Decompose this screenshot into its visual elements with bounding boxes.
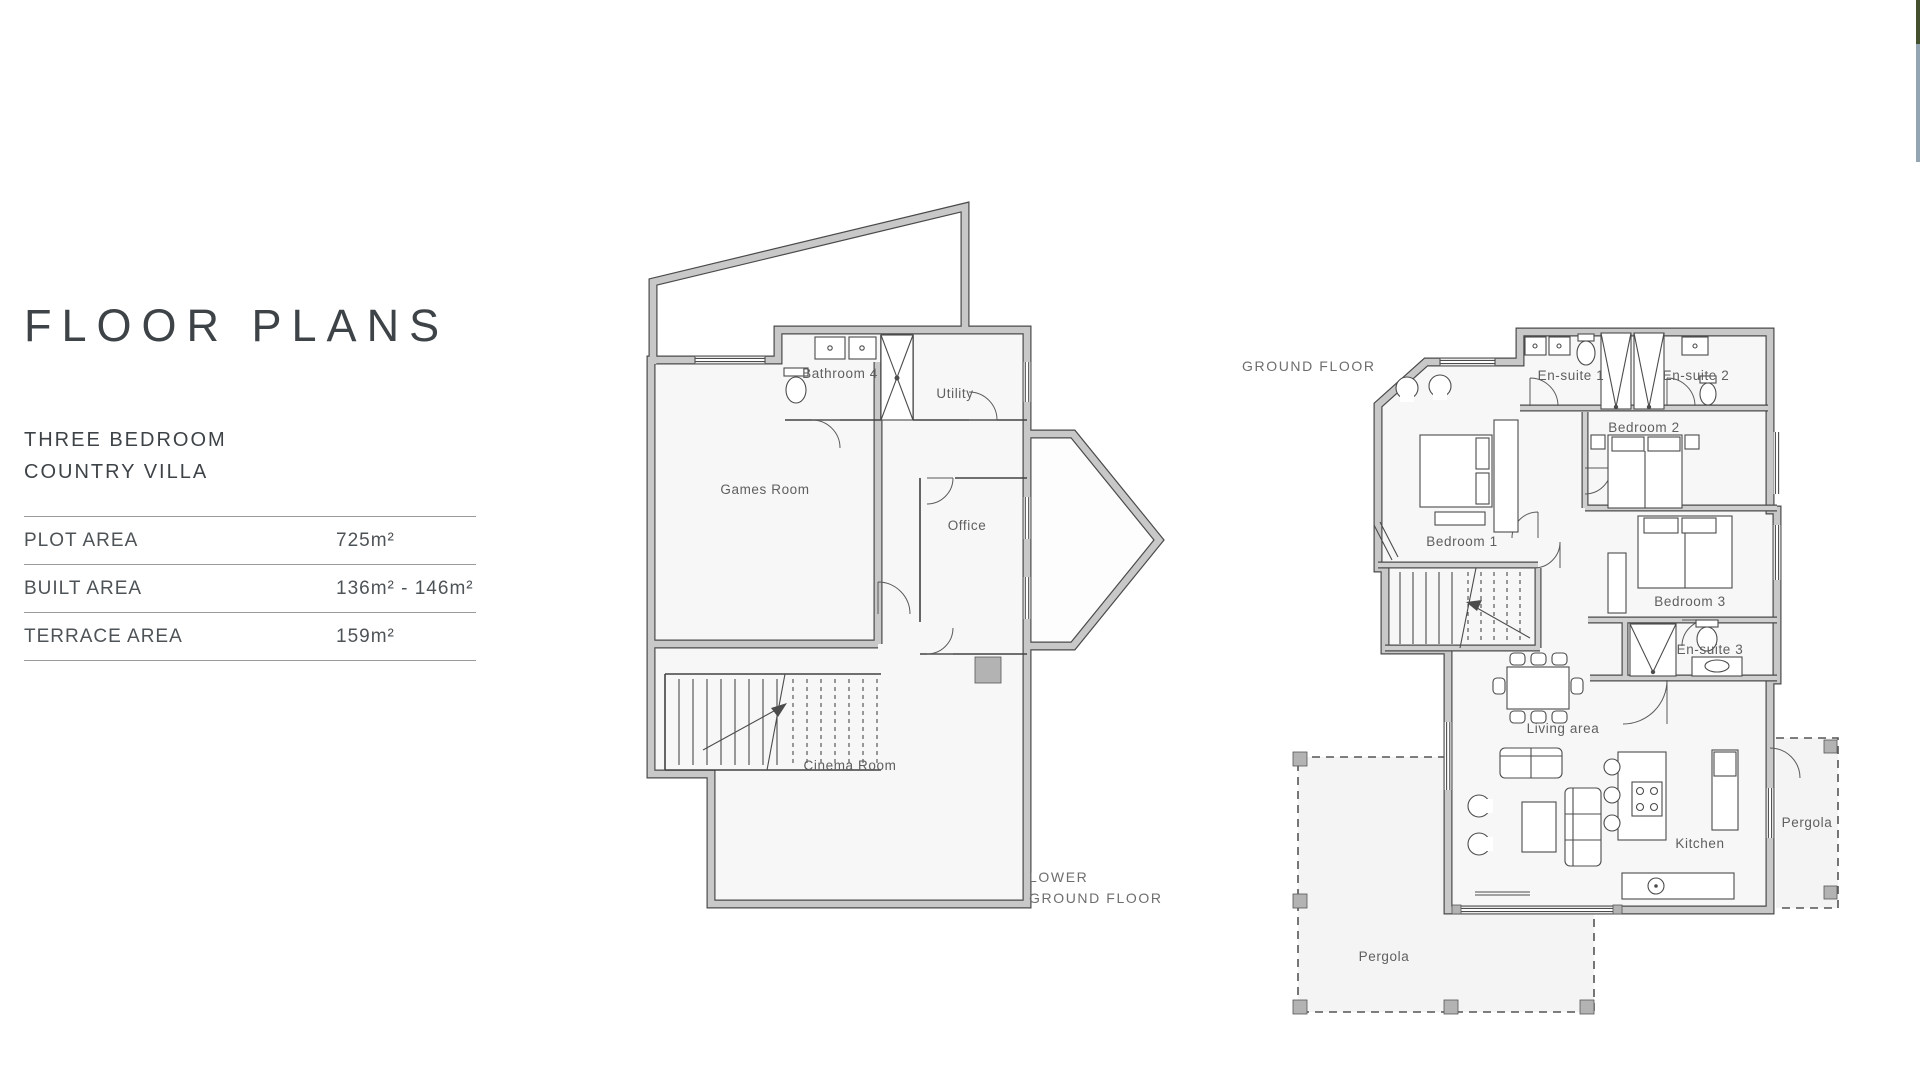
kitchen-island-icon [1604,752,1666,840]
table-row-plot-area: PLOT AREA 725m² [24,516,476,564]
hob-icon [1632,782,1662,816]
floor-label-line-1: LOWER [1029,869,1088,885]
pergola-post [1580,1000,1594,1014]
spec-label: PLOT AREA [24,530,336,552]
spec-label: BUILT AREA [24,578,336,600]
wardrobe-icon [1601,333,1631,409]
room-label-ensuite2: En-suite 2 [1663,368,1730,383]
stool-icon [1604,759,1620,775]
floor-plans-page: FLOOR PLANS THREE BEDROOM COUNTRY VILLA … [0,0,1920,1069]
floor-label-ground: GROUND FLOOR [1242,358,1376,374]
table-row-built-area: BUILT AREA 136m² - 146m² [24,564,476,612]
room-label-bedroom3: Bedroom 3 [1654,594,1725,609]
subtitle-line-1: THREE BEDROOM [24,424,227,456]
ground-floor-plan: GROUND FLOOR En-suite 1 En-suite 2 Bedro… [1230,320,1855,1035]
pergola-post [1824,740,1837,753]
room-label-pergola-left: Pergola [1359,949,1410,964]
room-label-cinema-room: Cinema Room [804,758,897,773]
floor-label-line-2: GROUND FLOOR [1029,890,1163,906]
room-label-pergola-right: Pergola [1782,815,1833,830]
wardrobe-icon [1634,333,1664,409]
spec-label: TERRACE AREA [24,626,336,648]
next-page-preview-strip-bottom [1916,44,1920,162]
spec-value: 159m² [336,626,476,648]
lower-ground-floor-plan: Bathroom 4 Utility Games Room Office Cin… [635,182,1165,912]
room-label-utility: Utility [936,386,973,401]
next-page-preview-strip-top [1916,0,1920,44]
wall-stub [975,657,1001,683]
spec-value: 136m² - 146m² [336,578,476,600]
coffee-table-icon [1522,802,1556,852]
area-specs-table: PLOT AREA 725m² BUILT AREA 136m² - 146m²… [24,516,476,661]
room-label-games-room: Games Room [720,482,809,497]
room-label-bedroom2: Bedroom 2 [1608,420,1679,435]
pergola-post [1293,1000,1307,1014]
spec-value: 725m² [336,530,476,552]
room-label-living-area: Living area [1527,721,1600,736]
pergola-post [1293,894,1307,908]
page-title: FLOOR PLANS [24,300,449,352]
shower-icon [1630,624,1676,676]
shower-icon [881,335,913,420]
toilet-icon [1577,334,1595,365]
property-subtitle: THREE BEDROOM COUNTRY VILLA [24,424,227,488]
table-row-terrace-area: TERRACE AREA 159m² [24,612,476,661]
room-label-kitchen: Kitchen [1675,836,1724,851]
room-label-ensuite1: En-suite 1 [1538,368,1605,383]
room-label-bedroom1: Bedroom 1 [1426,534,1497,549]
room-label-bathroom4: Bathroom 4 [802,366,878,381]
bed-icon [1420,420,1518,532]
pergola-post [1824,886,1837,899]
room-label-ensuite3: En-suite 3 [1677,642,1744,657]
stool-icon [1604,815,1620,831]
stool-icon [1604,787,1620,803]
pergola-post [1444,1000,1458,1014]
pergola-post [1293,752,1307,766]
subtitle-line-2: COUNTRY VILLA [24,456,227,488]
lower-ground-floor-label: LOWER GROUND FLOOR [1029,869,1163,906]
room-label-office: Office [948,518,987,533]
